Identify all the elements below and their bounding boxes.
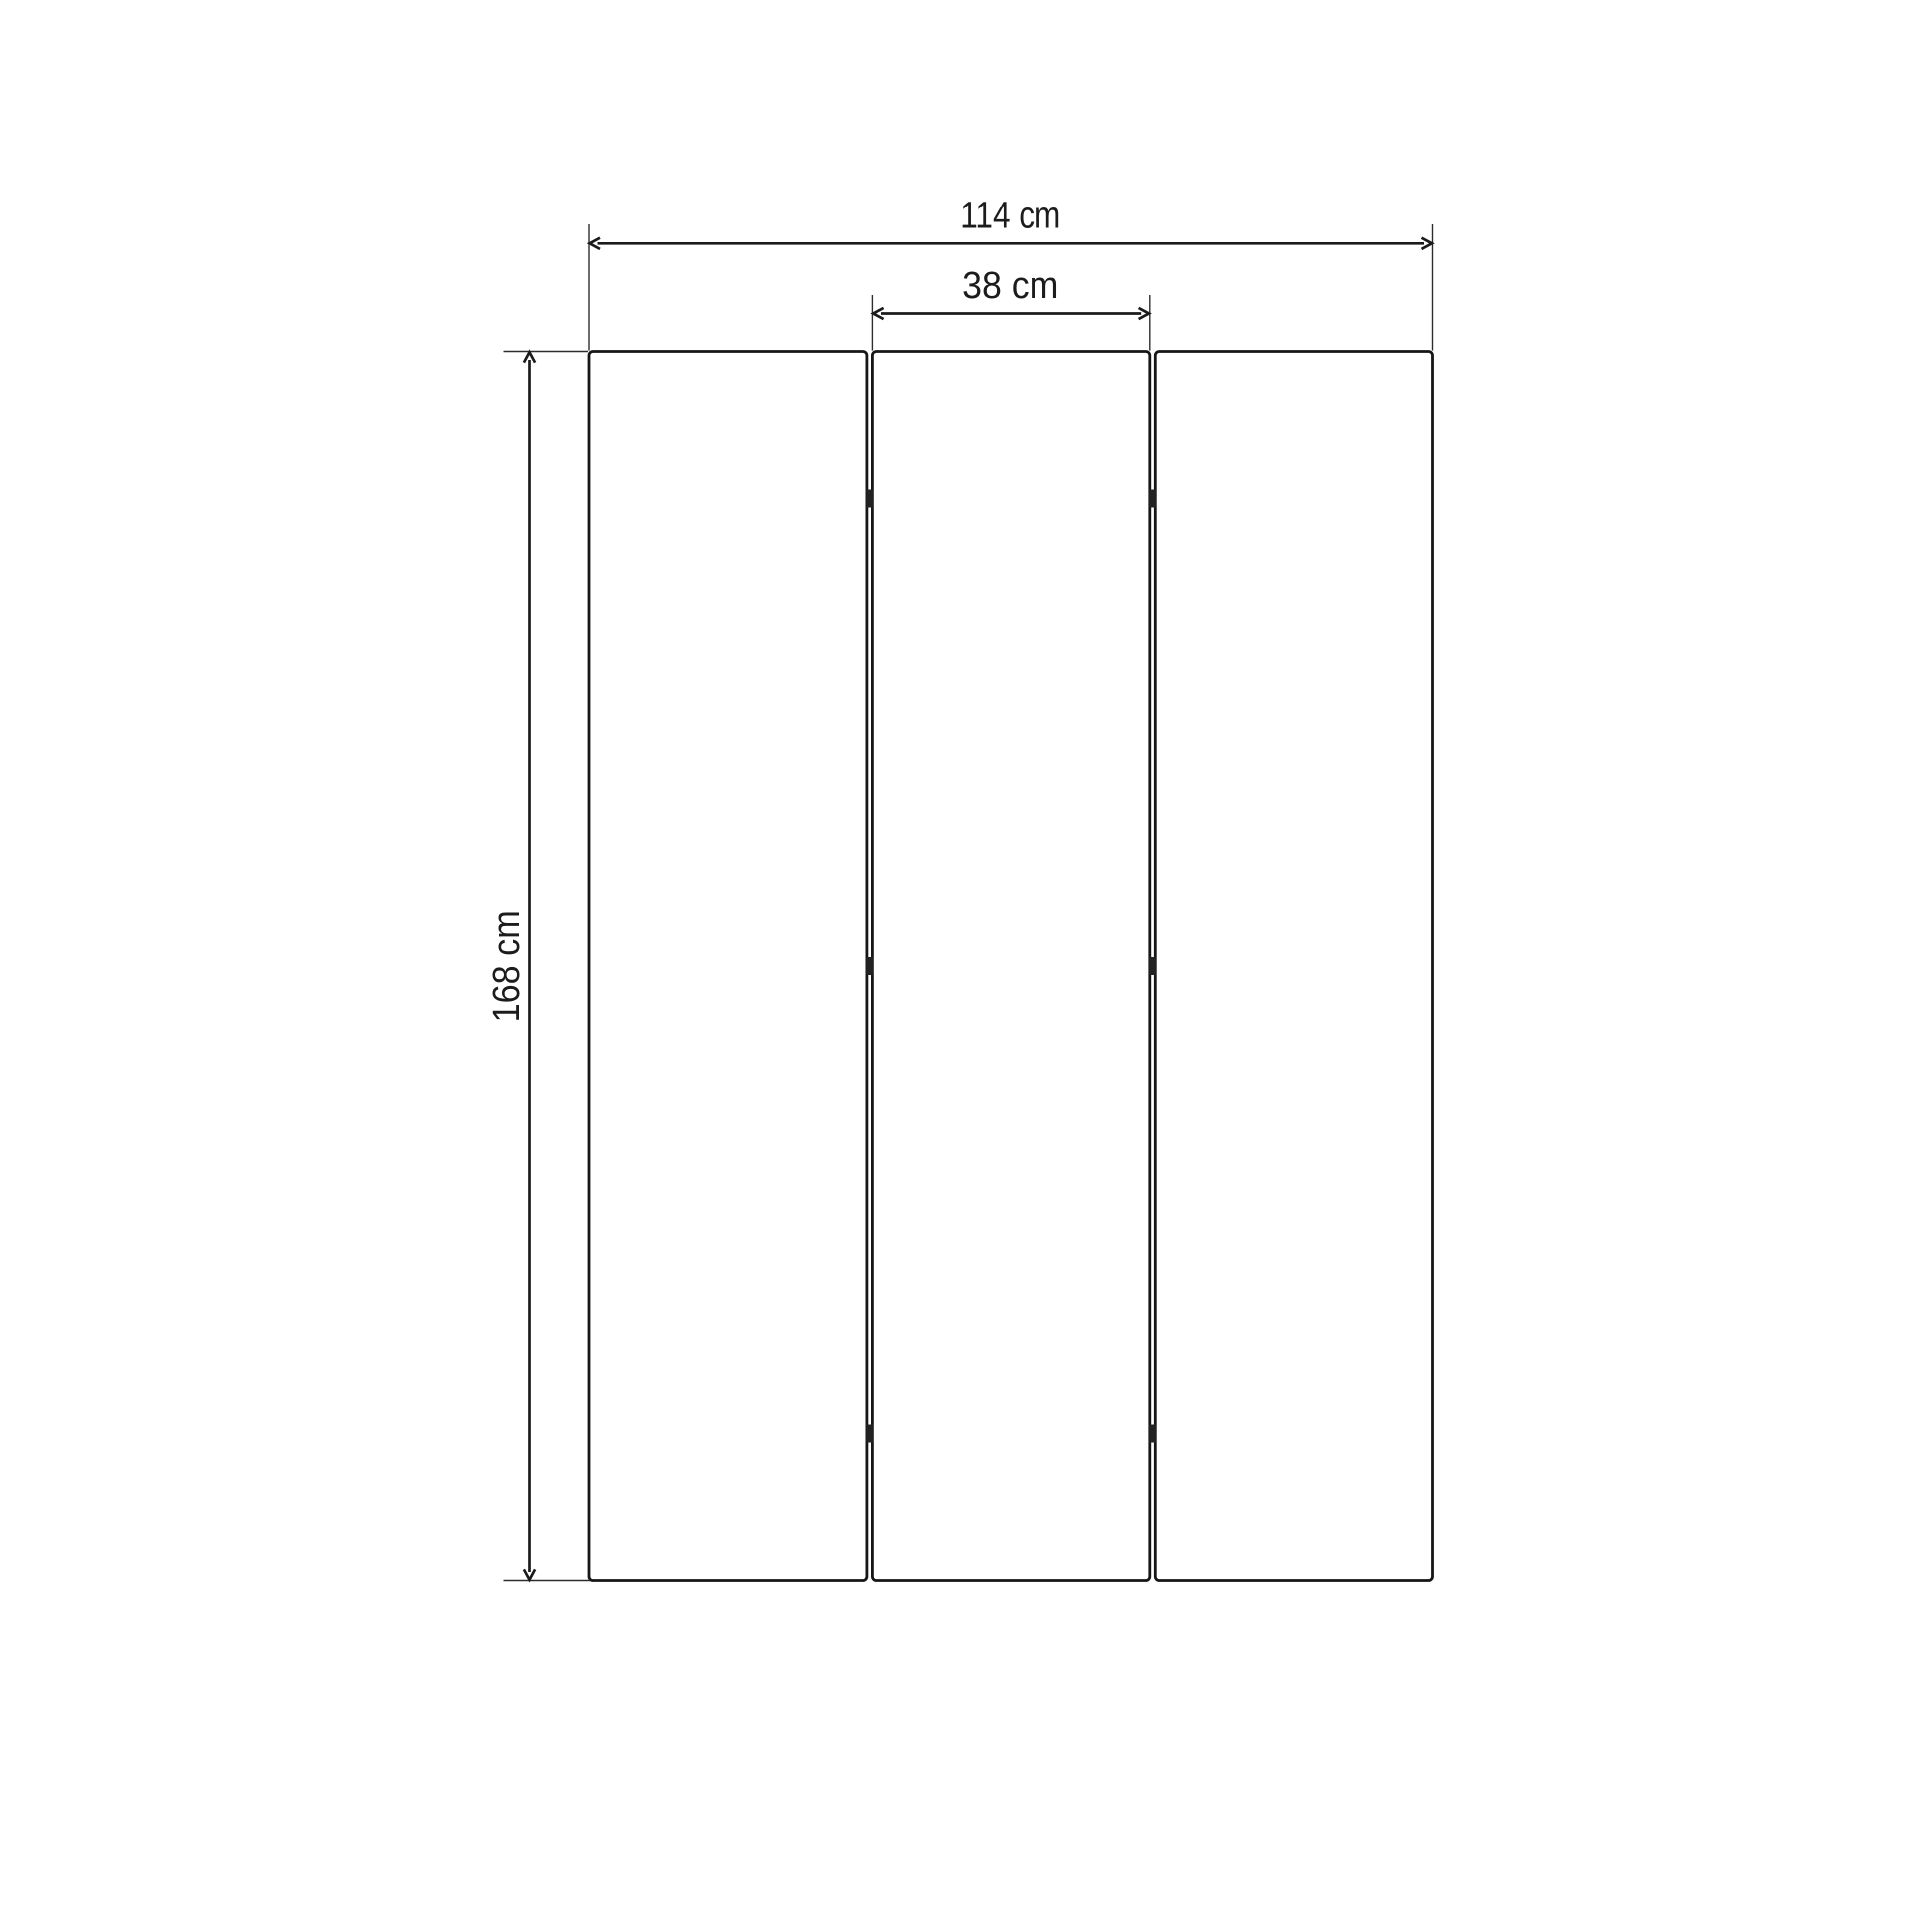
svg-text:168 cm: 168 cm — [484, 910, 527, 1022]
svg-text:114 cm: 114 cm — [960, 195, 1060, 236]
svg-text:38 cm: 38 cm — [962, 264, 1058, 306]
